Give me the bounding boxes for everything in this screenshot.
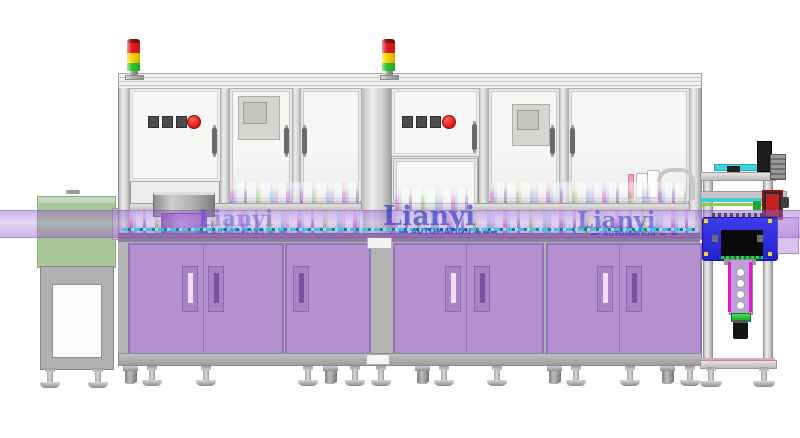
tower-green-light [382, 63, 395, 71]
leveling-foot [487, 366, 507, 386]
door-handle [472, 124, 477, 150]
corner-bolt [768, 219, 772, 223]
corner-bolt [704, 252, 708, 256]
green-sensor-block [753, 201, 761, 210]
cabinet [393, 243, 544, 357]
watermark-dash [591, 233, 599, 235]
emergency-stop-button [187, 115, 201, 129]
cabinet-door-split [203, 245, 204, 351]
cabinet-handle [626, 266, 642, 312]
machine-line-render: Lianyi AUTOMATION Lianyi AUTOMATION Lian… [0, 0, 800, 438]
leveling-foot [196, 366, 216, 386]
cabinet-door-split [619, 245, 620, 351]
leveling-foot [566, 366, 586, 386]
signal-tower [382, 39, 395, 80]
control-button [416, 116, 427, 128]
junction-base-block [366, 354, 390, 365]
caster-wheel [660, 366, 675, 384]
side-tab [712, 235, 718, 242]
junction-block [367, 237, 392, 249]
watermark-dash [660, 233, 678, 235]
left-machine-foot [40, 368, 60, 388]
signal-tower [127, 39, 140, 80]
caster-wheel [323, 366, 338, 384]
adjust-knob [781, 197, 789, 208]
door-handle [550, 128, 555, 154]
station-foot [700, 367, 722, 387]
cabinet-handle [445, 266, 461, 312]
left-machine-foot [88, 368, 108, 388]
corner-bolt [768, 252, 772, 256]
corner-bolt [704, 219, 708, 223]
door-handle [570, 128, 575, 154]
watermark: Lianyi AUTOMATION [198, 206, 285, 236]
camera-lens-cylinder [733, 320, 748, 339]
door-handle [284, 128, 289, 154]
control-button [430, 116, 441, 128]
tower-base [380, 75, 399, 80]
cabinet-base [118, 353, 702, 366]
module-a-control-door [129, 88, 221, 182]
cabinet-handle [474, 266, 490, 312]
leveling-foot [298, 366, 318, 386]
control-button [402, 116, 413, 128]
column-hole [736, 290, 745, 299]
column-hole [736, 268, 745, 277]
tower-yellow-light [382, 53, 395, 63]
column-hole [736, 301, 745, 310]
leveling-foot [142, 366, 162, 386]
watermark-dash [475, 231, 497, 233]
leveling-foot [371, 366, 391, 386]
leveling-foot [434, 366, 454, 386]
cabinet [546, 243, 702, 357]
watermark-dash [269, 231, 285, 233]
left-machine-top-handle [66, 190, 80, 194]
interior-equipment [230, 182, 360, 203]
door-handle [302, 128, 307, 154]
door-handle [212, 128, 217, 154]
gearbox [770, 154, 786, 180]
control-button [148, 116, 159, 128]
column-rail [728, 262, 731, 312]
tower-red-light [127, 43, 140, 53]
tower-green-light [127, 63, 140, 71]
watermark-subtitle: AUTOMATION [212, 228, 265, 236]
tower-base [125, 75, 144, 80]
watermark-subtitle: AUTOMATION [603, 230, 656, 238]
control-button [162, 116, 173, 128]
caster-wheel [415, 366, 430, 384]
cabinet-door-split [466, 245, 467, 351]
watermark: Lianyi AUTOMATION [577, 207, 678, 238]
column-rail [749, 262, 752, 312]
left-machine-stand-panel [52, 284, 102, 358]
caster-wheel [547, 366, 562, 384]
cabinet-handle [293, 266, 309, 312]
leveling-foot [680, 366, 700, 386]
station-top-crossbar [700, 172, 776, 181]
plate-black-block [727, 166, 740, 172]
tower-red-light [382, 43, 395, 53]
column-hole [736, 279, 745, 288]
control-button [176, 116, 187, 128]
watermark-subtitle: AUTOMATION [411, 227, 471, 236]
leveling-foot [620, 366, 640, 386]
translucent-purple-box [777, 217, 799, 254]
hmi-screen [243, 102, 267, 124]
tower-yellow-light [127, 53, 140, 63]
leveling-foot [345, 366, 365, 386]
station-foot [753, 367, 775, 387]
cabinet-handle [182, 266, 198, 312]
emergency-stop-button [442, 115, 456, 129]
watermark-dash [198, 231, 208, 233]
watermark-dash [399, 231, 407, 233]
watermark: Lianyi AUTOMATION [383, 201, 497, 236]
cabinet [128, 243, 284, 357]
cabinet-handle [597, 266, 613, 312]
hmi-screen [517, 110, 539, 130]
interior-equipment [490, 182, 686, 203]
side-tab [757, 235, 763, 242]
cabinet-handle [208, 266, 224, 312]
vision-unit-opening [721, 230, 763, 256]
caster-wheel [123, 366, 138, 384]
